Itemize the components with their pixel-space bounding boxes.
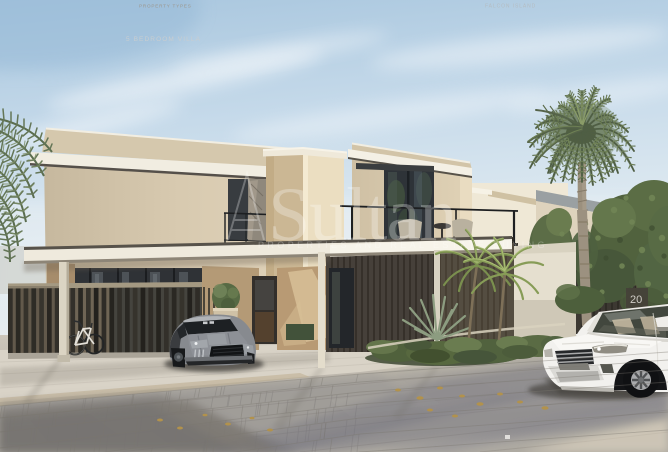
svg-text:PROPERTIES AND REAL ESTATE BUY: PROPERTIES AND REAL ESTATE BUYING — [258, 240, 548, 250]
svg-text:5 BEDROOM VILLA: 5 BEDROOM VILLA — [126, 36, 201, 43]
svg-text:20: 20 — [630, 294, 642, 306]
svg-text:FALCON ISLAND: FALCON ISLAND — [485, 4, 536, 10]
svg-text:PROPERTY TYPES: PROPERTY TYPES — [139, 4, 192, 9]
